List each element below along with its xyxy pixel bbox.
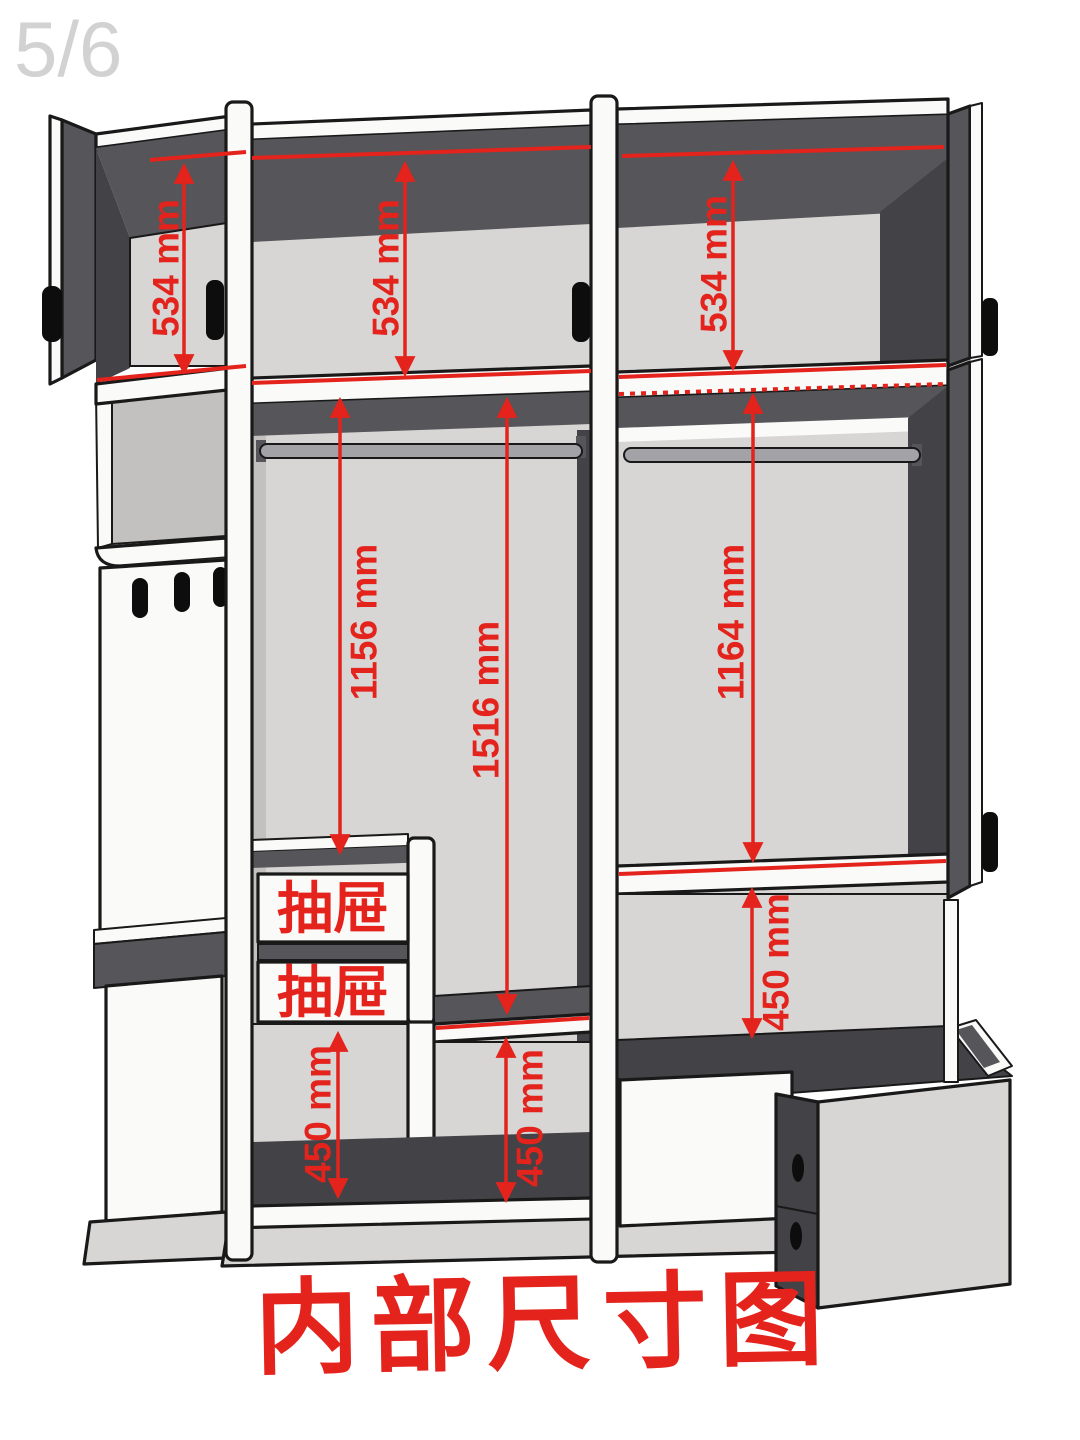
top-right-compartment [617,115,948,398]
hanging-rod [260,444,582,458]
drawer-label-lower: 抽屉 [277,961,389,1024]
left-side-unit [84,390,228,1264]
door-handle-icon [206,280,224,340]
right-end-panel [944,900,958,1082]
door-handle-icon [982,298,998,356]
bottom-right-door [620,1072,792,1226]
door-handle-icon [982,812,998,872]
door-handle-icon [572,282,590,342]
dimension-left-hanging: 1156 mm [344,544,385,700]
dimension-top-left: 534 mm [146,199,187,337]
drawer-handle-icon [790,1222,802,1250]
hook-panel [100,560,226,938]
lower-cabinet-door [106,976,222,1222]
door-handle-icon [42,286,62,342]
divider-panel [408,838,434,1024]
diagram-title: 内部尺寸图 [254,1257,836,1390]
drawer-label-upper: 抽屉 [277,877,389,940]
top-middle-compartment [252,126,591,404]
hanging-rod [624,448,920,462]
top-left-cabinet [42,114,246,404]
dimension-left-full: 1516 mm [466,621,507,779]
left-base [84,1212,226,1264]
right-top-door [948,106,970,366]
corner-front-face [818,1080,1010,1308]
dimension-top-right: 534 mm [694,195,735,333]
wardrobe-drawing: 534 mm 534 mm 534 mm 1156 mm 1516 mm 116… [0,0,1080,1440]
right-bottom-door [948,362,970,898]
wardrobe-dimension-diagram: 534 mm 534 mm 534 mm 1156 mm 1516 mm 116… [0,0,1080,1440]
left-door-edge [226,102,252,1260]
center-door-edge [591,96,617,1262]
dimension-top-middle: 534 mm [366,199,407,337]
drawer-handle-icon [792,1154,804,1182]
dimension-right-hanging: 1164 mm [711,544,752,700]
coat-hook-icon [174,572,190,612]
open-door-panel [62,120,96,378]
coat-hook-icon [132,578,148,618]
dimension-bottom-middle: 450 mm [510,1049,551,1187]
dimension-bottom-left: 450 mm [298,1045,339,1183]
dimension-bottom-right: 450 mm [756,893,797,1031]
page-indicator: 5/6 [14,5,122,93]
